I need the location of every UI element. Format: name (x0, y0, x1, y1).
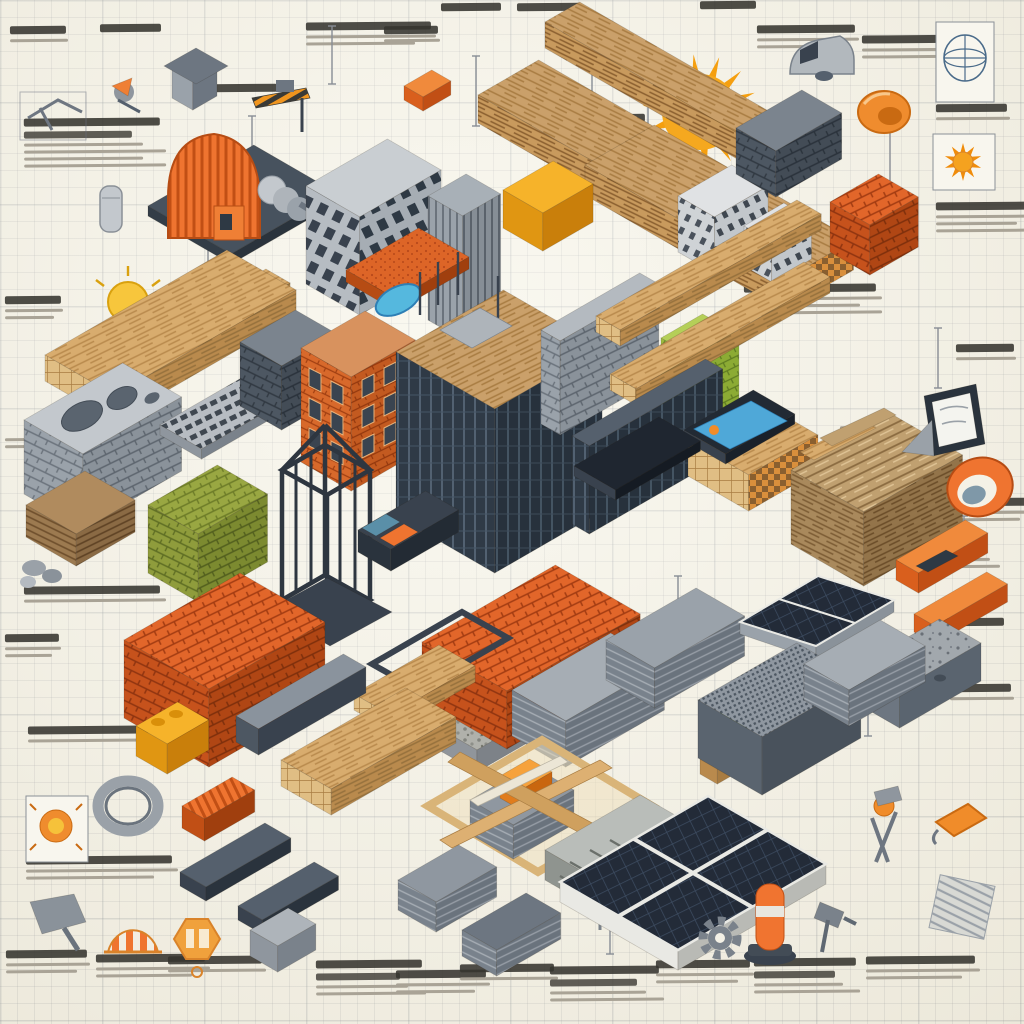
sun-sketch-box (933, 134, 995, 190)
dustpan-sketch (30, 894, 86, 950)
blueprint-globe-sketch (936, 22, 994, 102)
clamp-tool-sketch (112, 78, 140, 112)
hazard-crane-arm (252, 80, 310, 132)
van-sketch (790, 36, 854, 81)
gear (703, 921, 737, 955)
rock-samples-sketch (20, 560, 62, 588)
coil-ring (98, 781, 158, 831)
ribbed-panel-sketch (929, 875, 995, 939)
sun-splash-sketch (26, 796, 88, 862)
e-reader (902, 384, 985, 456)
pliers-sketch (872, 786, 902, 862)
isometric-scene (0, 0, 1024, 1024)
brick-cube (830, 174, 918, 275)
infographic-canvas: Isometric infographic collage of constru… (0, 0, 1024, 1024)
awning-dome (104, 930, 162, 952)
water-heater-sketch (100, 186, 122, 232)
orange-sander (933, 804, 986, 844)
hex-badge (174, 919, 220, 977)
planer-sketch (20, 92, 86, 140)
helmet-sketch (858, 91, 910, 133)
drill-sketch (814, 902, 856, 952)
orange-ridge-beam (182, 777, 255, 841)
orange-capsule (404, 70, 451, 111)
